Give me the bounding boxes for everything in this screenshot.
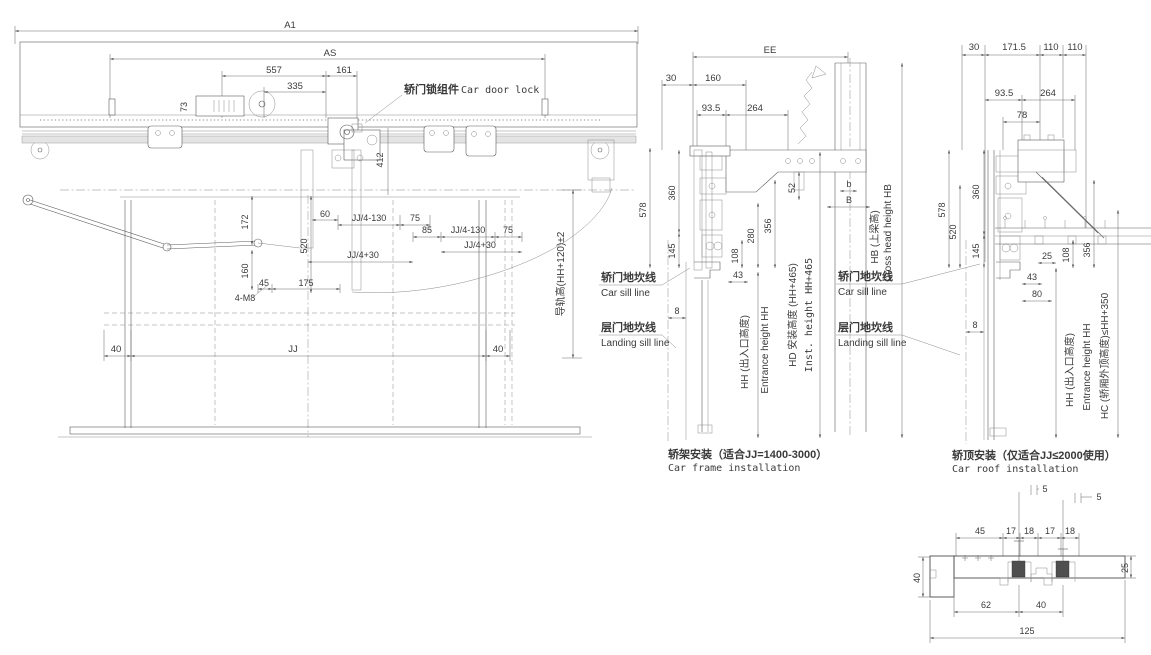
dim-jj4-130-a: JJ/4-130	[352, 213, 387, 223]
sill-section-view: 5 5 45 17 18 17 18 25 40	[912, 484, 1136, 643]
dim-172: 172	[240, 214, 250, 229]
dim-356: 356	[763, 218, 773, 233]
axis-hh-en: Entrance height HH	[760, 306, 771, 393]
hanger-bolt-right	[542, 99, 548, 115]
dim-18-a: 18	[1024, 526, 1034, 536]
car-frame-caption-en: Car frame installation	[668, 463, 800, 474]
car-door-lock-label-en: Car door lock	[461, 85, 539, 96]
dim-45: 45	[975, 526, 985, 536]
door-closing-arm	[23, 195, 300, 251]
sill-profile	[930, 541, 1125, 597]
dim-160: 160	[705, 73, 721, 84]
dim-108: 108	[1061, 247, 1071, 262]
dim-578: 578	[638, 202, 648, 217]
dim-160: 160	[240, 263, 250, 278]
car-sill-profile-roof	[996, 262, 1020, 278]
car-door-lock-label-cn: 轿门锁组件	[404, 82, 459, 96]
axis-hh-cn-roof: HH (出入口高度)	[1063, 333, 1076, 407]
return-pulley-left	[31, 141, 49, 159]
dim-145: 145	[667, 243, 677, 258]
landing-sill-line-label-en-roof: Landing sill line	[838, 338, 907, 349]
car-roof-rail	[995, 217, 1151, 245]
dim-161: 161	[336, 65, 352, 76]
elevator-door-installation-drawing: A1 AS 557 161 335 轿门锁组件 Car door lock 73	[0, 0, 1151, 655]
car-roof-caption-en: Car roof installation	[952, 464, 1078, 475]
dim-43: 43	[1027, 272, 1037, 282]
front-view-bottom-dims: 40 JJ 40	[104, 330, 510, 361]
dim-as: AS	[324, 48, 337, 59]
sill-extrusion-body	[954, 556, 1125, 578]
door-motor: 73	[179, 96, 244, 116]
car-sill-line-label-cn: 轿门地坎线	[601, 270, 656, 284]
front-view: A1 AS 557 161 335 轿门锁组件 Car door lock 73	[15, 20, 638, 437]
dim-75-b: 75	[503, 225, 513, 235]
car-frame-view: EE 30 160 93.5 264 578 360 145	[599, 45, 902, 474]
return-pulley-right	[591, 141, 609, 159]
axis-hb-en: Cross head height HB	[883, 184, 894, 282]
dim-25: 25	[1042, 251, 1052, 261]
axis-hh-cn: HH (出入口高度)	[738, 315, 751, 389]
dim-a1: A1	[284, 20, 296, 31]
car-frame-caption-cn: 轿架安装（适合JJ=1400-3000）	[668, 447, 827, 461]
dim-93-5: 93.5	[995, 88, 1014, 99]
dim-30: 30	[969, 42, 980, 53]
landing-sill-line-label-cn: 层门地坎线	[600, 320, 656, 334]
dim-rail-height: 导轨高(HH+120)±2	[554, 231, 567, 316]
car-roof-caption-cn: 轿顶安装（仅适合JJ≤2000使用）	[952, 448, 1116, 462]
operator-side-profile	[690, 146, 730, 270]
dim-264: 264	[747, 103, 763, 114]
dim-175: 175	[298, 278, 313, 288]
dim-40-height: 40	[912, 573, 922, 583]
dim-171-5: 171.5	[1002, 42, 1026, 53]
landing-sill-line-label-en: Landing sill line	[601, 338, 670, 349]
sill-end-cap	[930, 556, 954, 597]
dim-335: 335	[287, 81, 303, 92]
sill-center-island	[1031, 568, 1052, 582]
dim-43: 43	[733, 270, 743, 280]
door-operator-header: 73 412	[20, 42, 637, 290]
dim-ee: EE	[764, 45, 777, 56]
car-frame-left-dims: 578 360 145	[638, 148, 679, 268]
dim-110-b: 110	[1067, 42, 1082, 53]
section-top-dims: 5 5 45 17 18 17 18	[956, 484, 1102, 556]
dim-17-a: 17	[1006, 526, 1016, 536]
dim-18-b: 18	[1065, 526, 1075, 536]
dim-jj4-130-b: JJ/4-130	[451, 225, 486, 235]
dim-b-cap: B	[846, 195, 852, 205]
dim-62: 62	[981, 600, 991, 610]
dim-360: 360	[971, 184, 981, 199]
dim-73: 73	[179, 102, 189, 112]
dim-60: 60	[320, 209, 330, 219]
dim-125: 125	[1019, 626, 1034, 636]
dim-557: 557	[266, 65, 282, 76]
car-sill-line-label-en: Car sill line	[601, 288, 650, 299]
section-bottom-dims: 62 40 125	[930, 578, 1125, 643]
dim-40-left: 40	[111, 344, 122, 355]
door-gib-right	[1056, 561, 1069, 577]
axis-hh-en-roof: Entrance height HH	[1082, 323, 1093, 410]
dim-jj4+30-a: JJ/4+30	[347, 250, 379, 260]
car-sill-line-label-en-roof: Car sill line	[838, 287, 887, 298]
drive-pulley	[249, 91, 275, 117]
door-shoe	[698, 425, 712, 433]
support-brace	[1036, 172, 1098, 233]
door-shoe-roof	[990, 428, 1006, 436]
dim-5-a: 5	[1042, 484, 1047, 494]
dim-93-5: 93.5	[702, 103, 721, 114]
dim-5-b: 5	[1096, 492, 1101, 502]
dim-78: 78	[1017, 110, 1028, 121]
door-gib-left	[1012, 561, 1025, 577]
dim-jj: JJ	[288, 344, 298, 355]
dim-145: 145	[971, 243, 981, 258]
rail-height-dim: 导轨高(HH+120)±2	[352, 188, 612, 358]
dim-52: 52	[787, 183, 797, 193]
dim-412: 412	[375, 152, 385, 167]
axis-hb-cn: HB (上梁高)	[868, 210, 881, 263]
dim-108: 108	[730, 248, 740, 263]
car-frame-caption: 轿架安装（适合JJ=1400-3000） Car frame installat…	[668, 447, 827, 474]
dim-17-b: 17	[1045, 526, 1055, 536]
dim-85: 85	[422, 225, 432, 235]
hanger-bolt-left	[109, 99, 115, 115]
dim-264: 264	[1040, 88, 1056, 99]
car-roof-caption: 轿顶安装（仅适合JJ≤2000使用） Car roof installation	[952, 448, 1116, 475]
dim-45: 45	[259, 278, 269, 288]
dim-25: 25	[1120, 563, 1130, 573]
car-roof-sill-labels: 轿门地坎线 Car sill line 层门地坎线 Landing sill l…	[836, 264, 980, 355]
dim-40: 40	[1036, 600, 1046, 610]
dim-356: 356	[1082, 242, 1092, 257]
dim-360: 360	[667, 185, 677, 200]
door-motor-side	[1018, 135, 1076, 182]
car-roof-left-dims: 578 520 360 145	[937, 150, 984, 268]
landing-sill-line-label-cn-roof: 层门地坎线	[837, 320, 893, 334]
door-lock-mechanism	[328, 118, 380, 168]
rope-hook	[812, 66, 826, 78]
dim-520: 520	[299, 238, 309, 253]
car-frame-height-dims: HH (出入口高度) Entrance height HH HD 安装高度 (H…	[738, 63, 902, 438]
dim-8: 8	[674, 306, 679, 316]
drawing-canvas: A1 AS 557 161 335 轿门锁组件 Car door lock 73	[0, 0, 1151, 655]
axis-hd-cn: HD 安装高度 (HH+465)	[786, 263, 799, 367]
dim-578: 578	[937, 202, 947, 217]
axis-hd-en: Inst. height HH+465	[804, 258, 815, 372]
dim-75-a: 75	[410, 213, 420, 223]
dim-b-small: b	[846, 179, 851, 189]
dim-40-right: 40	[493, 344, 504, 355]
rope-hitch-spring	[798, 72, 812, 144]
dim-8: 8	[972, 320, 977, 330]
car-roof-structure	[966, 135, 1151, 444]
car-sill-line-label-cn-roof: 轿门地坎线	[838, 269, 893, 283]
dim-110-a: 110	[1043, 42, 1058, 53]
dim-80: 80	[1032, 289, 1042, 299]
axis-hc: HC (轿厢外顶高度)≤HH+350	[1098, 292, 1111, 419]
floor-base	[70, 427, 580, 434]
dim-30: 30	[666, 73, 677, 84]
dim-4-m8: 4-M8	[235, 293, 256, 303]
dim-jj4+30-b: JJ/4+30	[464, 240, 496, 250]
dim-280: 280	[746, 228, 756, 243]
dim-520: 520	[948, 224, 958, 239]
